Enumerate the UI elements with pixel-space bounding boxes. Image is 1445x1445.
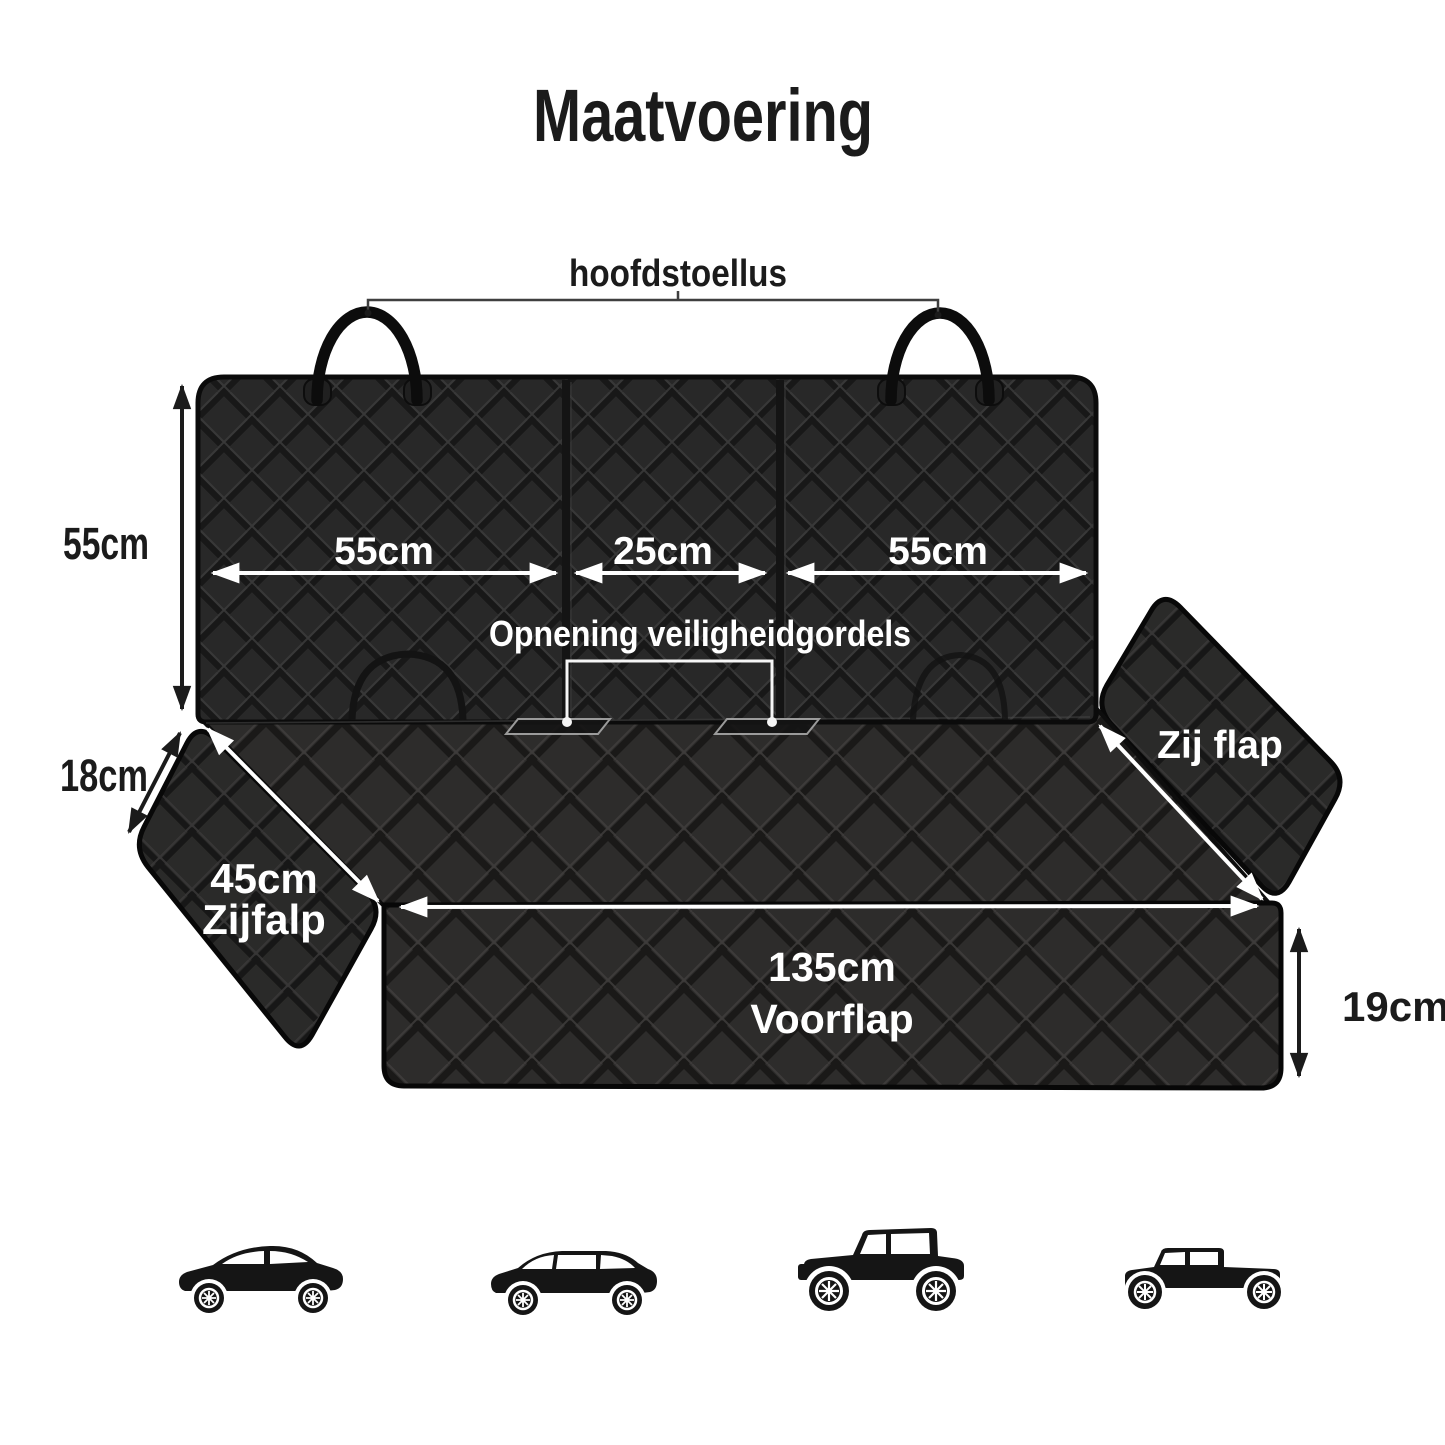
seatbelt-slot-left [506,719,610,734]
front-flap-width-arrow [401,906,1257,907]
seatbelt-slot-right [715,719,819,734]
page-title: Maatvoering [533,74,873,157]
headrest-loop-label: hoofdstoellus [569,253,787,295]
backrest-height-label: 55cm [63,518,149,569]
panel-middle-width-label: 25cm [613,530,713,573]
front-flap-height-label: 19cm [1342,983,1445,1030]
seatbelt-opening-label: Opnening veiligheidgordels [489,613,911,654]
left-flap-name-label: Zijfalp [202,896,326,943]
product-dimension-page: Maatvoering [0,0,1445,1445]
panel-left-width-label: 55cm [334,530,434,573]
front-flap-name-label: Voorflap [750,996,913,1042]
left-flap-size-label: 45cm [210,855,317,902]
right-flap-name-label: Zij flap [1157,724,1283,767]
front-flap-width-label: 135cm [768,944,896,990]
left-flap-depth-label: 18cm [60,750,148,801]
dimension-diagram: Maatvoering [0,0,1445,1445]
panel-right-width-label: 55cm [888,530,988,573]
